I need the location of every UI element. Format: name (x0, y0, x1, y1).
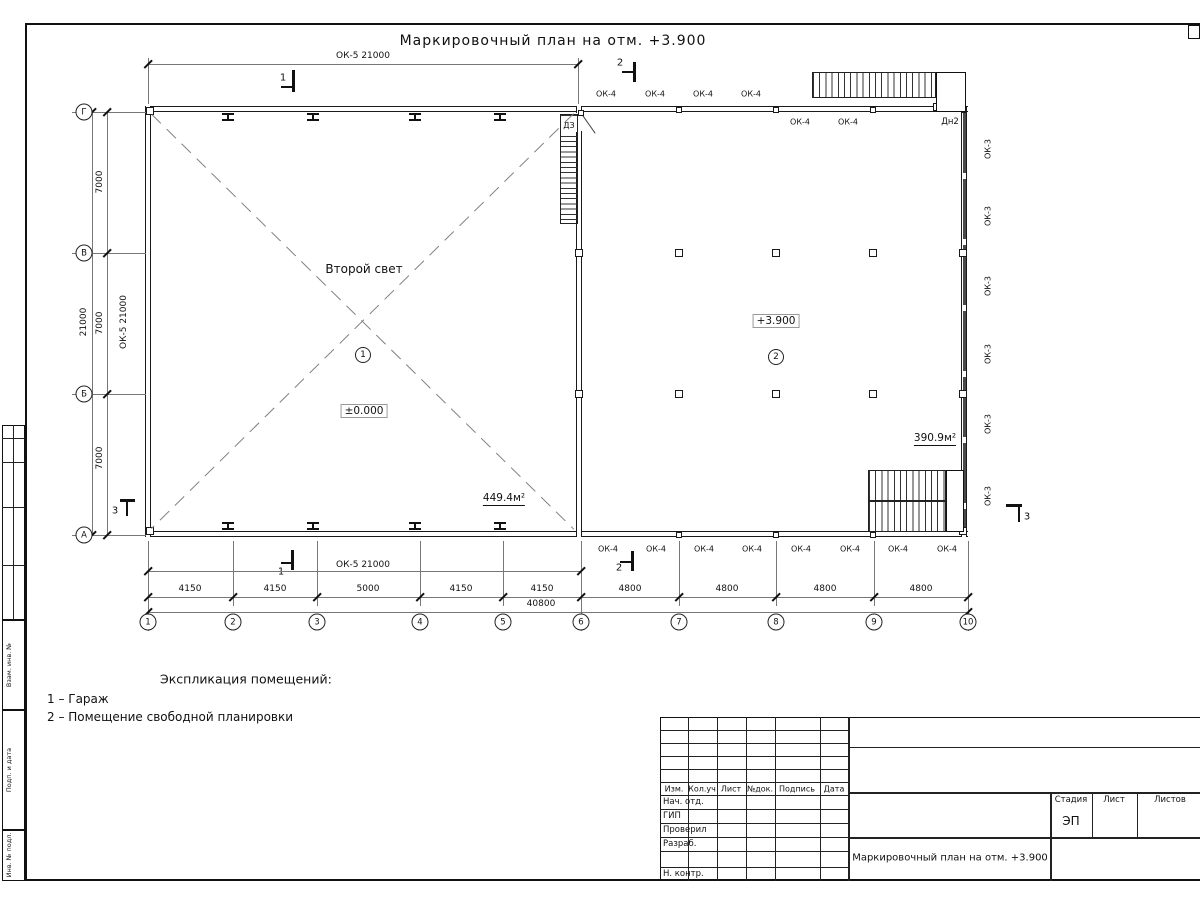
section-flag (291, 550, 294, 570)
axis-bubble-7: 7 (671, 614, 688, 631)
tb-stage-value: ЭП (1062, 814, 1079, 828)
window-mark-ok4: ОК-4 (646, 545, 666, 554)
dim-span: 5000 (357, 584, 380, 594)
titleblock-line (1092, 792, 1093, 837)
titleblock-line (848, 717, 850, 881)
frame-left-line (25, 23, 27, 881)
section-mark-2: 2 (617, 58, 623, 69)
steel-column (222, 522, 234, 530)
tb-stage-label: Стадия (1055, 795, 1088, 805)
steel-column (494, 113, 506, 121)
window-mark-ok4: ОК-4 (596, 90, 616, 99)
section-flag (126, 502, 128, 516)
tb-col-list: Лист (721, 785, 741, 794)
room1-number: 1 (355, 347, 371, 363)
steel-column (409, 522, 421, 530)
dim-span: 4150 (450, 584, 473, 594)
window-mark-ok4: ОК-4 (790, 118, 810, 127)
dim-line-left-total (92, 112, 93, 535)
wall-pilaster (575, 249, 583, 257)
wall-pilaster (870, 532, 876, 538)
stamp-label-vzam: Взам. инв. № (5, 643, 13, 687)
wall-pilaster (773, 532, 779, 538)
wall-bottom (145, 531, 968, 537)
column (772, 390, 780, 398)
dim-label-21000: 21000 (79, 308, 89, 337)
titleblock-line (848, 792, 1200, 794)
axis-bubble-8: 8 (768, 614, 785, 631)
section-flag (1006, 504, 1022, 507)
tb-sheets-label: Листов (1154, 795, 1186, 805)
door-mark-dn2: Дн2 (941, 117, 959, 127)
diagonal-brace (151, 114, 574, 530)
axis-bubble-9: 9 (866, 614, 883, 631)
dim-line-bottom-ok5 (148, 571, 581, 572)
titleblock-line (848, 747, 1200, 748)
wall-top (145, 106, 968, 112)
tb-col-izm: Изм. (665, 785, 684, 794)
dim-label-7000: 7000 (95, 171, 105, 194)
window-mark-ok3: ОК-3 (984, 276, 993, 296)
dim-span: 4800 (814, 584, 837, 594)
section-flag (622, 71, 634, 73)
dim-line-total (148, 612, 968, 613)
tb-row-proveril: Проверил (663, 825, 707, 835)
steel-column (494, 522, 506, 530)
frame-top-line (25, 23, 1200, 25)
tb-col-koluch: Кол.уч (688, 785, 716, 794)
frame-corner-box (1188, 25, 1200, 39)
window-mark-ok4: ОК-4 (742, 545, 762, 554)
dim-span: 4800 (619, 584, 642, 594)
wall-pilaster (575, 390, 583, 398)
window-mark-ok4: ОК-4 (598, 545, 618, 554)
section-flag (292, 70, 295, 92)
axis-bubble-5: 5 (495, 614, 512, 631)
steel-column (307, 113, 319, 121)
dim-span: 4150 (179, 584, 202, 594)
titleblock-line (660, 743, 848, 744)
section-flag (281, 86, 293, 88)
corner-column (146, 527, 154, 535)
window-mark-ok4: ОК-4 (838, 118, 858, 127)
stamp-line (2, 565, 25, 566)
column (675, 249, 683, 257)
wall-pilaster (870, 107, 876, 113)
tb-row-razrab: Разраб. (663, 839, 696, 849)
titleblock-line (660, 769, 848, 770)
dim-span: 4800 (716, 584, 739, 594)
room1-note: Второй свет (325, 262, 402, 276)
column (675, 390, 683, 398)
tb-doc-title: Маркировочный план на отм. +3.900 (852, 853, 1048, 864)
room2-number: 2 (768, 349, 784, 365)
titleblock-line (660, 756, 848, 757)
tb-row-nkontr: Н. контр. (663, 869, 704, 879)
window-mark-ok4: ОК-4 (694, 545, 714, 554)
window-mark-ok4: ОК-4 (645, 90, 665, 99)
axis-bubble-2: 2 (225, 614, 242, 631)
axis-bubble-a: А (76, 527, 93, 544)
wall-pilaster (959, 390, 967, 398)
titleblock-line (1137, 792, 1138, 837)
titleblock-line (660, 837, 848, 838)
titleblock-line (660, 809, 848, 810)
axis-bubble-1: 1 (140, 614, 157, 631)
wall-pilaster (676, 107, 682, 113)
dim-label-total: 40800 (527, 599, 556, 609)
axis-bubble-b: Б (76, 386, 93, 403)
wall-pilaster (773, 107, 779, 113)
axis-bubble-4: 4 (412, 614, 429, 631)
stamp-line (2, 438, 25, 439)
door-swing-internal (582, 115, 596, 134)
stamp-line (2, 462, 25, 463)
schedule-heading: Экспликация помещений: (160, 672, 332, 687)
dim-label-7000: 7000 (95, 312, 105, 335)
exterior-stair (812, 72, 936, 98)
interior-stair-divider (868, 500, 946, 502)
dim-label-top-ok5: ОК-5 21000 (336, 51, 390, 61)
tb-row-gip: ГИП (663, 811, 681, 821)
titleblock-line (660, 823, 848, 824)
section-mark-3b: 3 (112, 506, 118, 517)
wall-left (145, 106, 151, 537)
titleblock-line (660, 867, 848, 868)
window-mark-ok3: ОК-3 (984, 486, 993, 506)
stamp-divider (13, 425, 14, 620)
window-mark-ok4: ОК-4 (937, 545, 957, 554)
section-flag (120, 499, 135, 502)
tb-sheet-label: Лист (1103, 795, 1125, 805)
steel-column (409, 113, 421, 121)
titleblock-line (717, 717, 718, 881)
window-mark-ok4: ОК-4 (888, 545, 908, 554)
window-mark-ok4: ОК-4 (693, 90, 713, 99)
window-mark-ok3: ОК-3 (984, 206, 993, 226)
axis-bubble-10: 10 (960, 614, 977, 631)
titleblock-line (775, 717, 776, 881)
section-flag (620, 561, 632, 563)
titleblock-line (848, 837, 1200, 839)
section-mark-3: 3 (1024, 512, 1030, 523)
window-mark-ok4: ОК-4 (840, 545, 860, 554)
titleblock-line (820, 717, 821, 881)
titleblock-line (1050, 792, 1052, 881)
dim-label-bottom-ok5: ОК-5 21000 (336, 560, 390, 570)
window-mark-ok3: ОК-3 (984, 139, 993, 159)
section-flag (281, 562, 292, 564)
schedule-item-1: 1 – Гараж (47, 692, 109, 706)
column (869, 249, 877, 257)
dim-span: 4800 (910, 584, 933, 594)
stamp-label-inv: Инв. № подл. (5, 833, 13, 878)
section-flag (1018, 507, 1020, 522)
drawing-sheet: Взам. инв. № Подп. и дата Инв. № подл. М… (0, 0, 1200, 900)
titleblock-line (660, 851, 848, 852)
section-mark-1: 1 (280, 73, 286, 84)
wall-right-windows (963, 113, 966, 531)
dim-line-left-chain (107, 112, 108, 535)
window-mark-ok3: ОК-3 (984, 344, 993, 364)
stamp-line (2, 507, 25, 508)
axis-bubble-v: В (76, 245, 93, 262)
titleblock-line (746, 717, 747, 881)
dim-label-7000: 7000 (95, 447, 105, 470)
axis-bubble-6: 6 (573, 614, 590, 631)
interior-stair-landing (946, 470, 964, 532)
tb-col-ndok: №док. (747, 785, 773, 794)
stamp-label-podp: Подп. и дата (5, 748, 13, 792)
steel-column (222, 113, 234, 121)
page-title: Маркировочный план на отм. +3.900 (400, 33, 707, 49)
room1-level: ±0.000 (341, 404, 388, 418)
axis-bubble-3: 3 (309, 614, 326, 631)
schedule-item-2: 2 – Помещение свободной планировки (47, 710, 293, 724)
window-mark-ok4: ОК-4 (741, 90, 761, 99)
titleblock-line (660, 782, 848, 783)
window-mark-ok3: ОК-3 (984, 414, 993, 434)
tb-row-nachotd: Нач. отд. (663, 797, 704, 807)
dim-span: 4150 (531, 584, 554, 594)
tb-col-podpis: Подпись (779, 785, 815, 794)
room1-area: 449.4м² (483, 492, 525, 506)
dim-span: 4150 (264, 584, 287, 594)
section-mark-2b: 2 (616, 563, 622, 574)
dim-line-top (148, 64, 578, 65)
column (772, 249, 780, 257)
window-mark-ok4: ОК-4 (791, 545, 811, 554)
door-leaf-internal (578, 110, 584, 116)
dim-label-left-ok5: ОК-5 21000 (119, 295, 129, 349)
room2-area: 390.9м² (914, 432, 956, 446)
tb-col-data: Дата (824, 785, 845, 794)
dim-line-chain (148, 597, 968, 598)
exterior-stair-landing (936, 72, 966, 112)
steel-column (307, 522, 319, 530)
wall-pilaster (959, 249, 967, 257)
column (869, 390, 877, 398)
axis-bubble-g: Г (76, 104, 93, 121)
wall-pilaster (676, 532, 682, 538)
titleblock-line (660, 730, 848, 731)
room2-level: +3.900 (753, 314, 800, 328)
